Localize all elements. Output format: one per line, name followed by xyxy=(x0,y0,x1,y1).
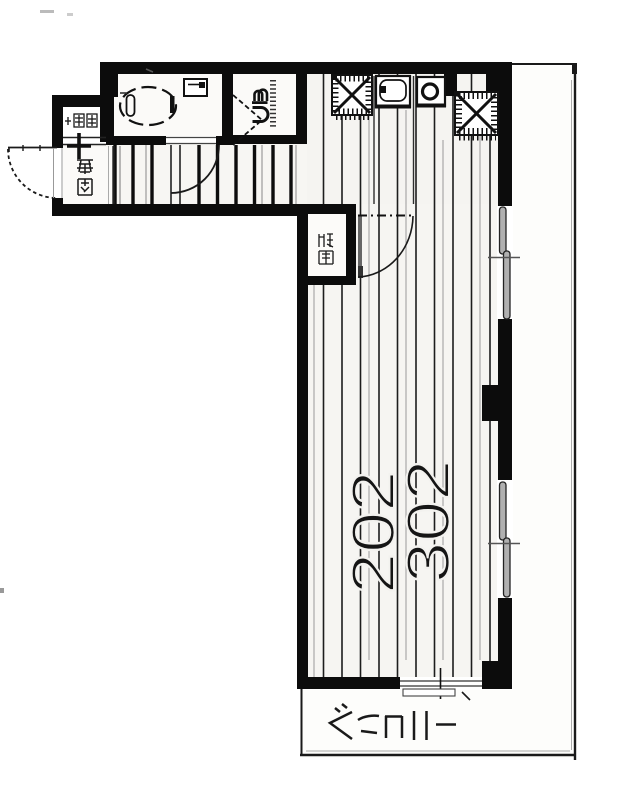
svg-text:302: 302 xyxy=(394,460,462,583)
